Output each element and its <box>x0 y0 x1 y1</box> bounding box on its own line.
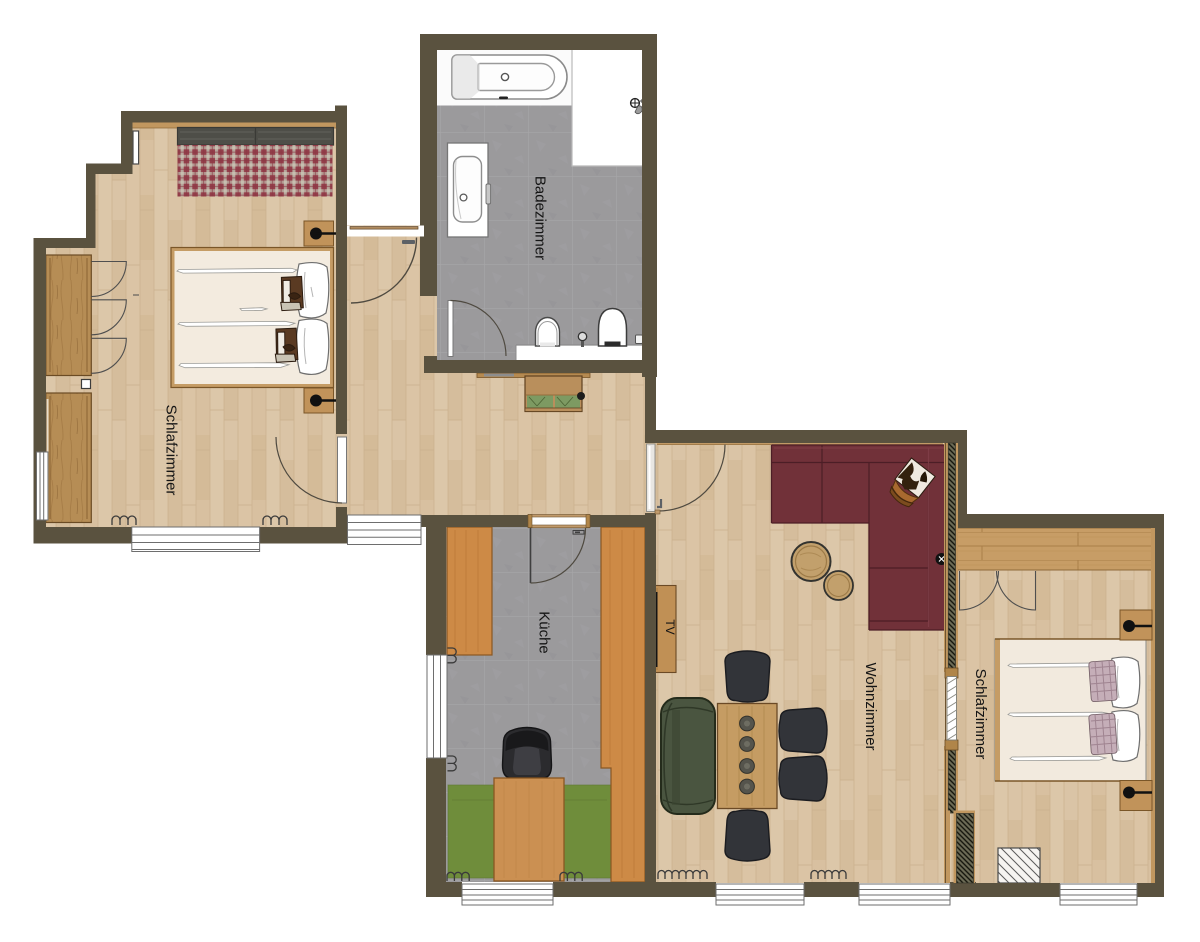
svg-text:Küche: Küche <box>536 611 553 654</box>
svg-text:Badezimmer: Badezimmer <box>532 176 549 260</box>
svg-text:TV: TV <box>663 619 677 634</box>
svg-text:Schlafzimmer: Schlafzimmer <box>163 405 180 496</box>
svg-text:Wohnzimmer: Wohnzimmer <box>862 662 879 750</box>
svg-text:Schlafzimmer: Schlafzimmer <box>972 669 989 760</box>
